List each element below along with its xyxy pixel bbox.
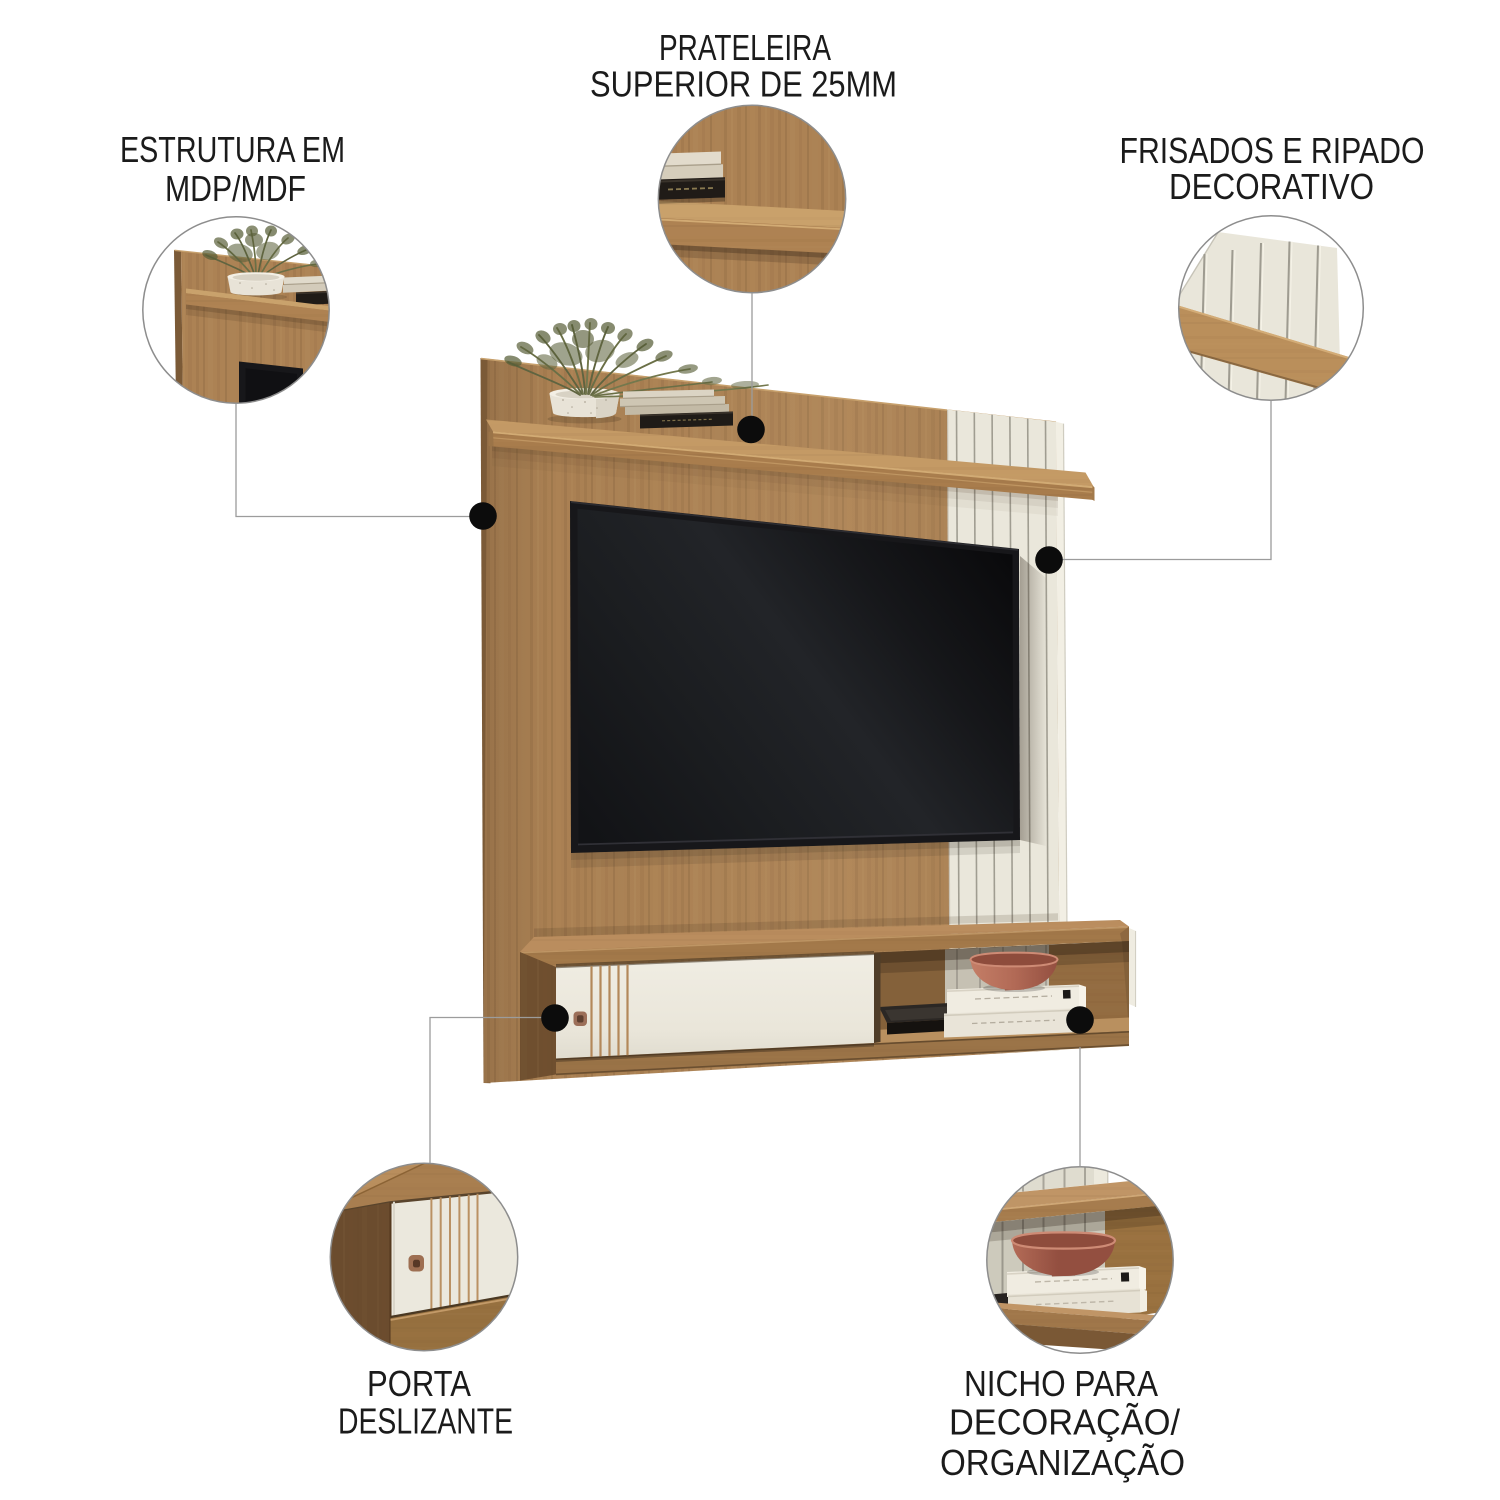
svg-text:FRISADOS E RIPADO: FRISADOS E RIPADO [1120, 130, 1425, 171]
svg-text:SUPERIOR DE 25MM: SUPERIOR DE 25MM [590, 64, 897, 105]
svg-text:NICHO PARA: NICHO PARA [964, 1363, 1158, 1404]
svg-text:MDP/MDF: MDP/MDF [165, 168, 306, 209]
svg-text:PORTA: PORTA [367, 1363, 471, 1404]
svg-text:DECORATIVO: DECORATIVO [1169, 166, 1374, 207]
svg-text:ESTRUTURA EM: ESTRUTURA EM [120, 129, 345, 170]
svg-text:PRATELEIRA: PRATELEIRA [659, 27, 831, 68]
svg-text:ORGANIZAÇÃO: ORGANIZAÇÃO [940, 1442, 1185, 1483]
svg-text:DECORAÇÃO/: DECORAÇÃO/ [949, 1402, 1180, 1443]
svg-text:DESLIZANTE: DESLIZANTE [338, 1401, 513, 1442]
